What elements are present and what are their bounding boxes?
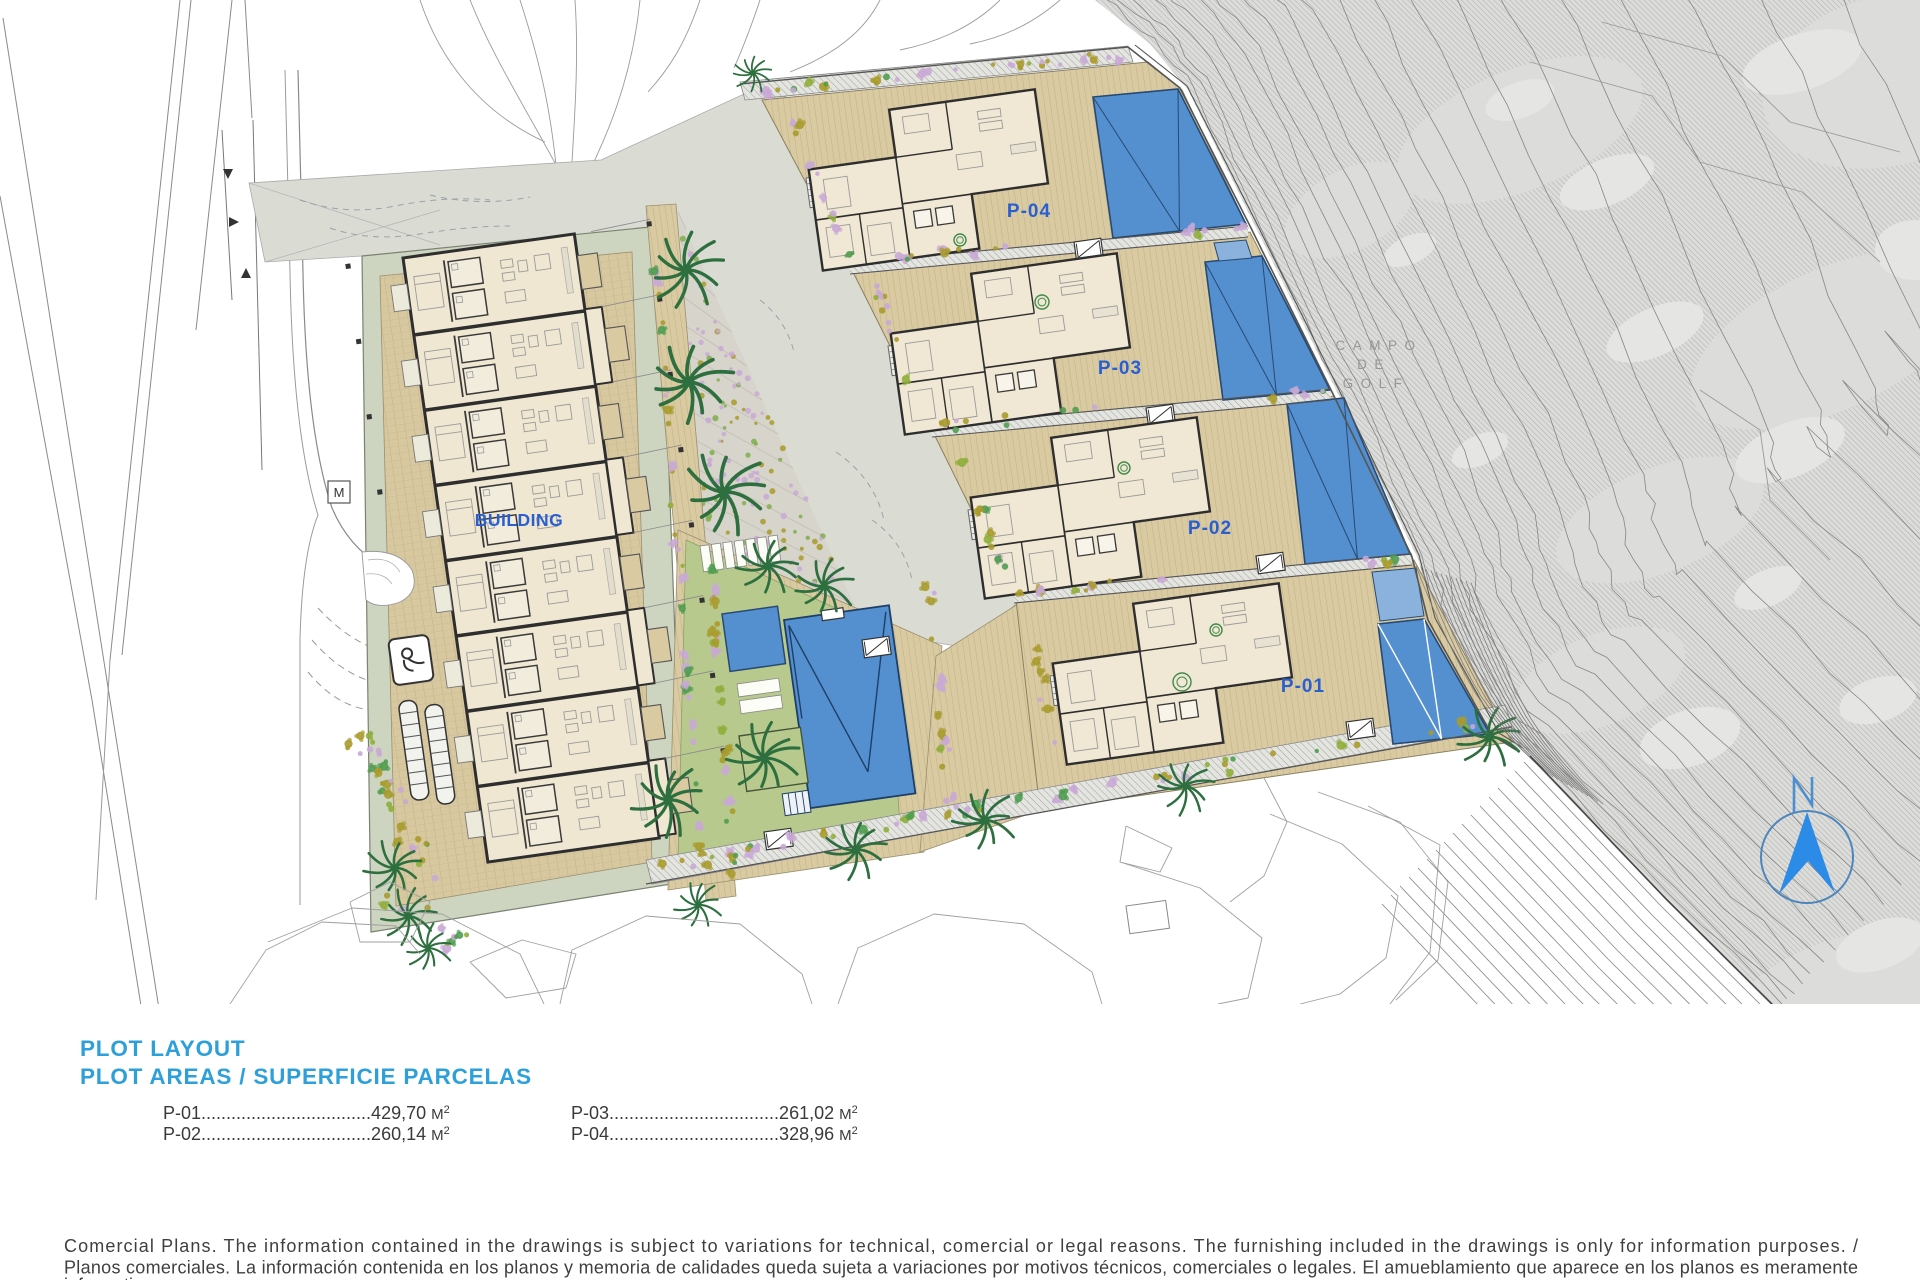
svg-text:P-04: P-04 [1007, 201, 1051, 222]
svg-text:P-01: P-01 [1281, 676, 1325, 697]
svg-text:P-02..........................: P-02..................................26… [163, 1124, 450, 1144]
svg-text:Comercial Plans. The informati: Comercial Plans. The information contain… [64, 1236, 1858, 1256]
svg-text:DE: DE [1357, 357, 1391, 372]
svg-text:PLOT LAYOUT: PLOT LAYOUT [80, 1036, 245, 1061]
svg-text:PLOT AREAS / SUPERFICIE PARCEL: PLOT AREAS / SUPERFICIE PARCELAS [80, 1064, 532, 1089]
svg-text:Planos comerciales. La informa: Planos comerciales. La información conte… [64, 1258, 1858, 1278]
svg-text:GOLF: GOLF [1343, 376, 1410, 391]
svg-text:P-03..........................: P-03..................................26… [571, 1103, 858, 1123]
svg-text:P-02: P-02 [1188, 518, 1232, 539]
svg-text:P-04..........................: P-04..................................32… [571, 1124, 858, 1144]
svg-text:P-03: P-03 [1098, 358, 1142, 379]
svg-text:CAMPO: CAMPO [1335, 338, 1422, 353]
svg-text:BUILDING: BUILDING [475, 510, 564, 530]
svg-text:informativo.: informativo. [64, 1275, 157, 1280]
svg-text:M: M [334, 485, 345, 500]
svg-text:P-01..........................: P-01..................................42… [163, 1103, 450, 1123]
